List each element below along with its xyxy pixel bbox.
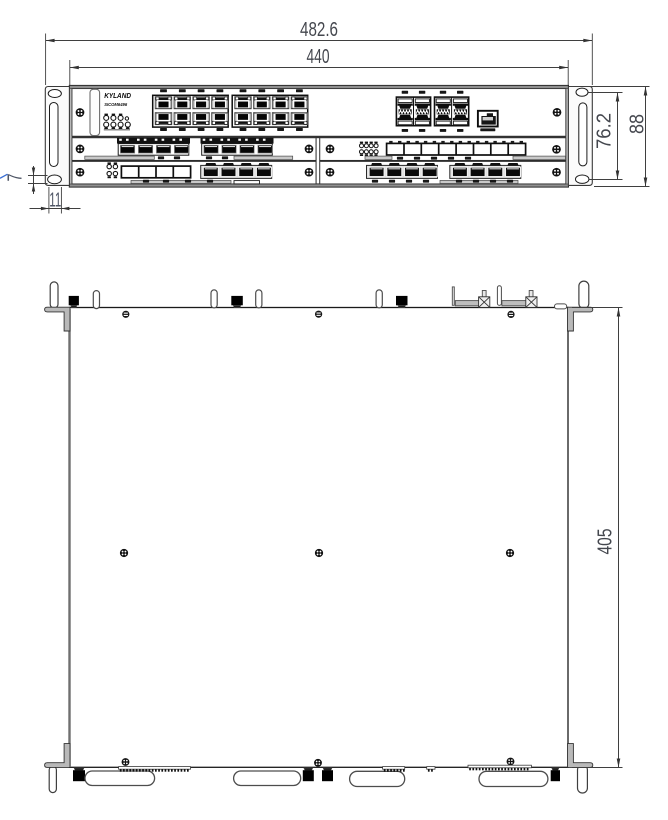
svg-text:440: 440 <box>307 46 330 68</box>
svg-text:405: 405 <box>595 529 617 555</box>
svg-text:88: 88 <box>627 114 649 134</box>
svg-text:SICOM6496: SICOM6496 <box>104 102 128 107</box>
svg-text:76.2: 76.2 <box>594 113 616 149</box>
svg-text:KYLAND: KYLAND <box>104 91 131 100</box>
svg-text:482.6: 482.6 <box>300 19 338 41</box>
svg-text:7: 7 <box>5 174 27 182</box>
svg-text:11: 11 <box>49 189 61 211</box>
